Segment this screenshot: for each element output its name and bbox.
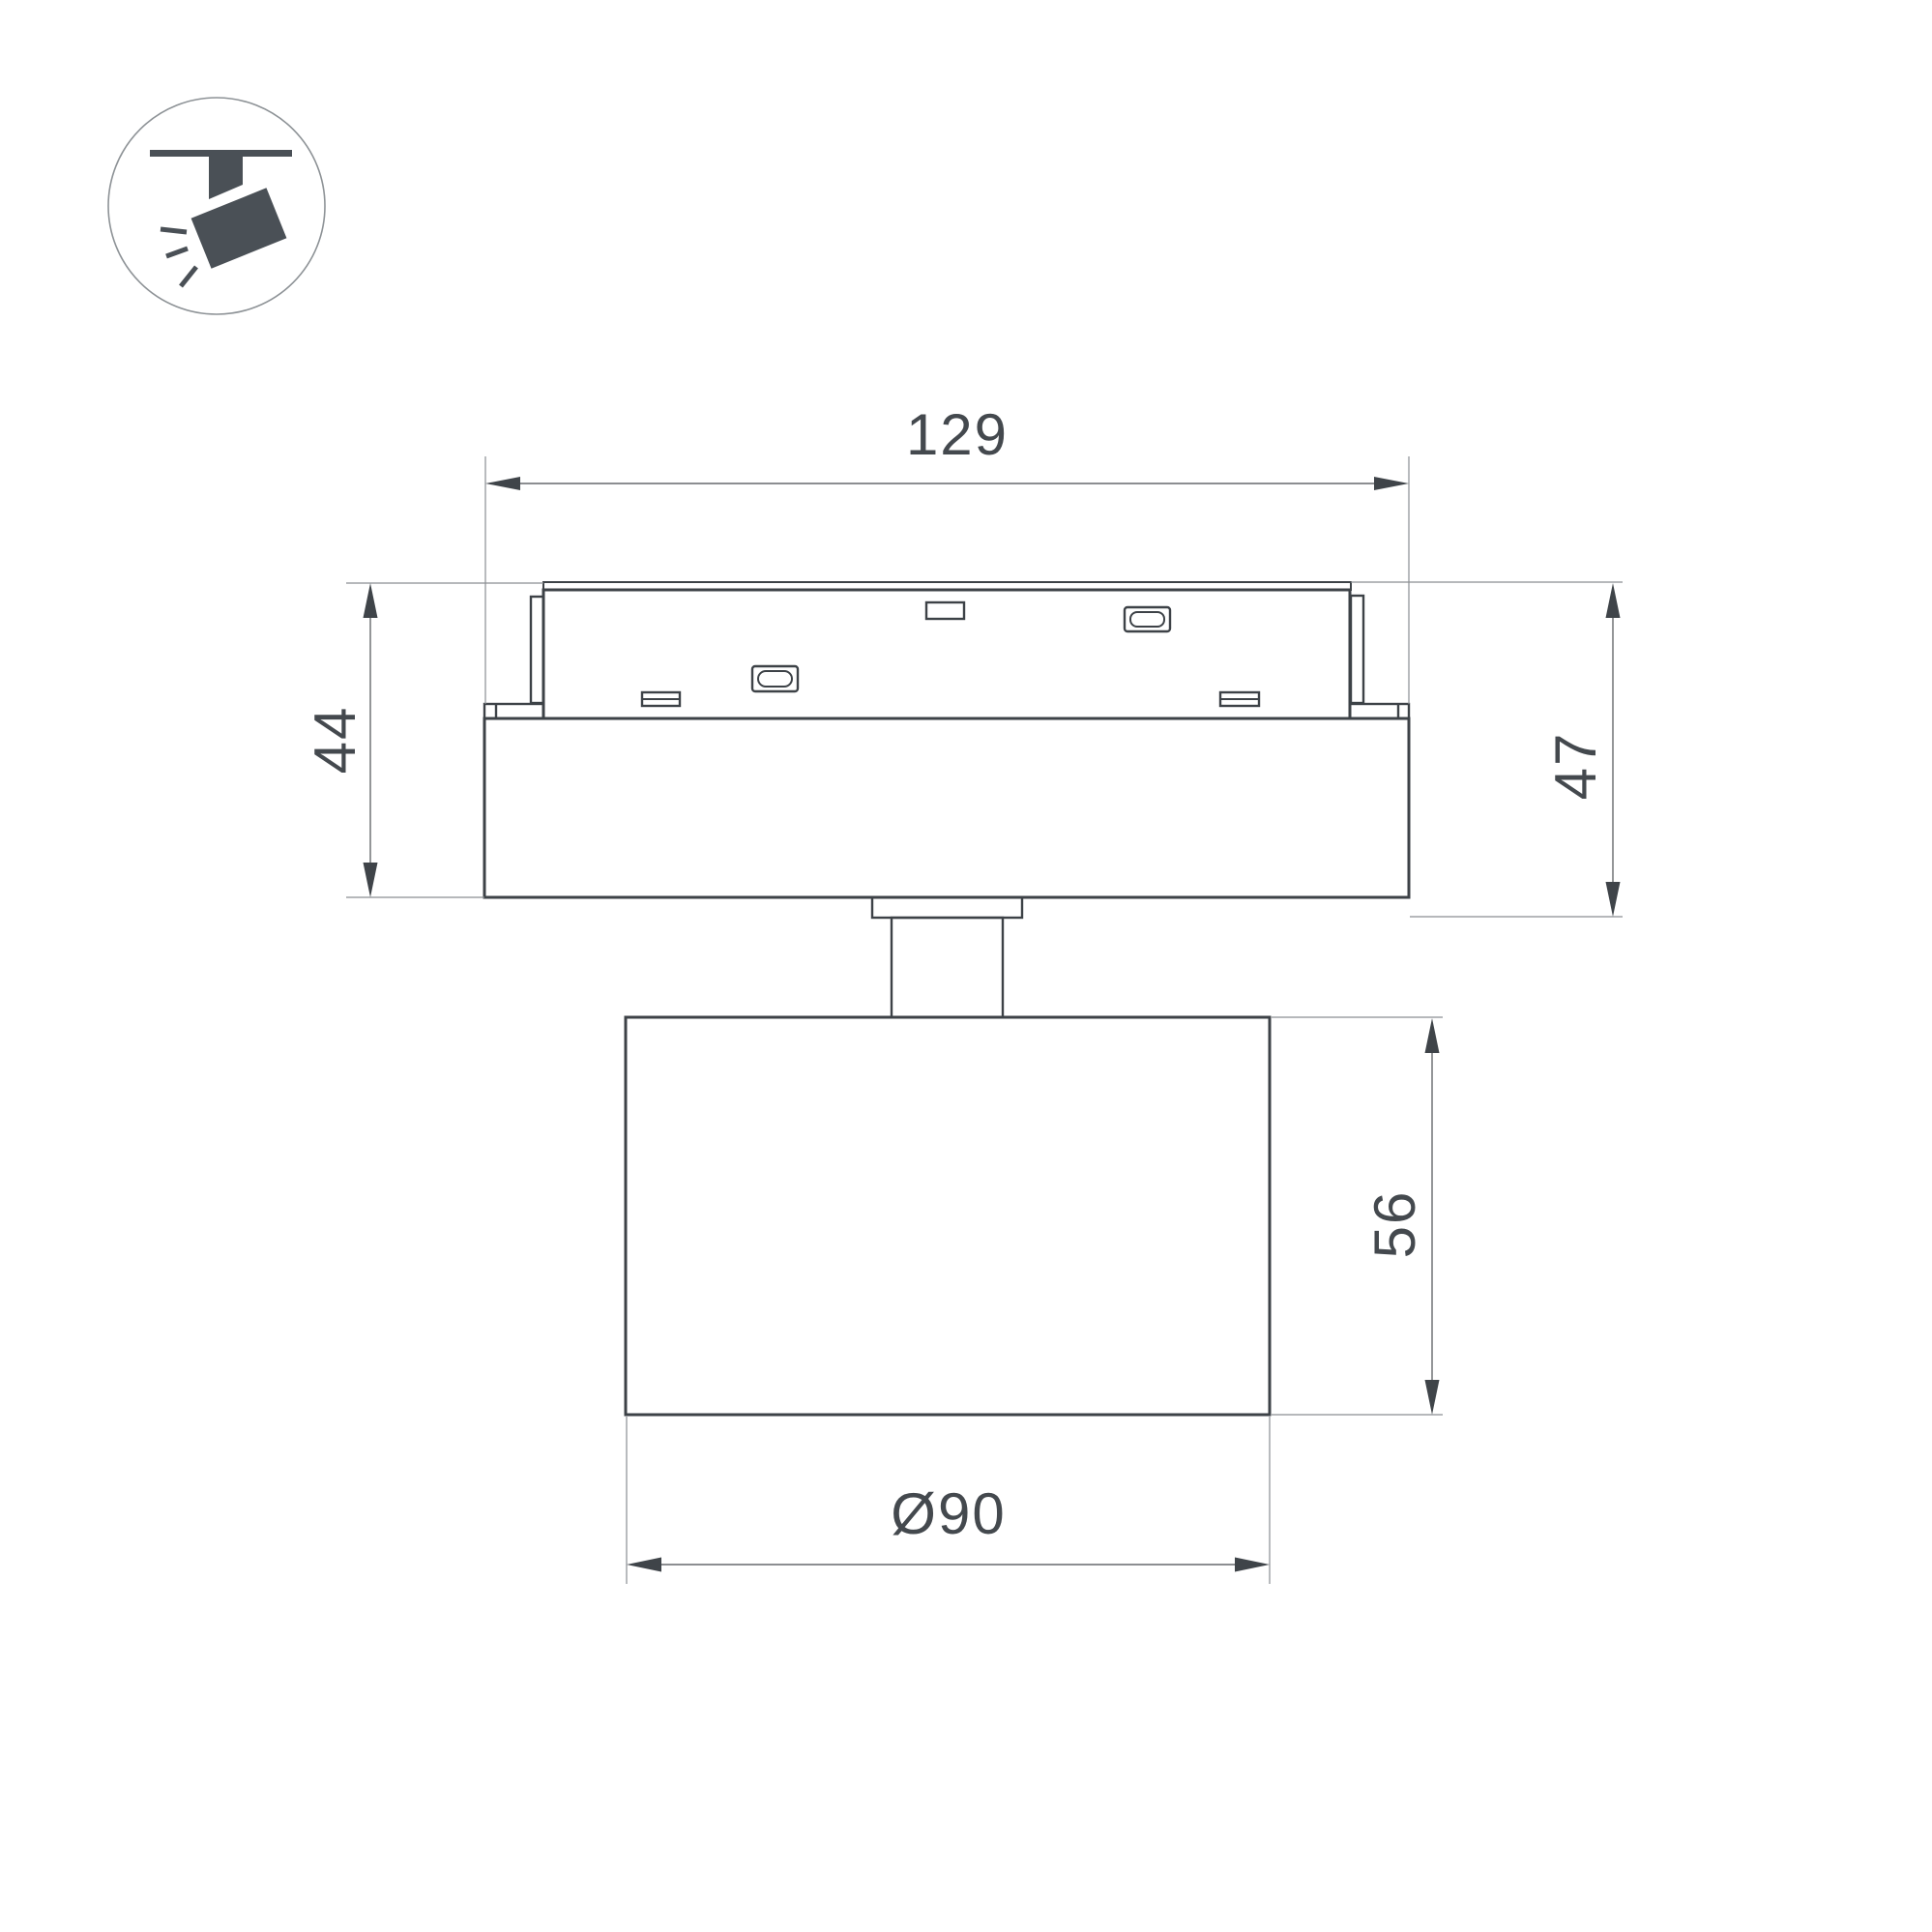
- housing-ledge-left: [484, 704, 543, 718]
- dim-label-right-height: 47: [1541, 659, 1611, 872]
- dim-label-head-diameter: Ø90: [842, 1479, 1055, 1549]
- adapter-slot-flat-right: [1220, 692, 1259, 706]
- dim-label-head-height: 56: [1361, 1118, 1430, 1331]
- adapter-slot-round-left: [752, 666, 798, 691]
- adapter-lower-housing: [484, 718, 1409, 897]
- icon-light-ray: [161, 229, 187, 232]
- lamp-head-cylinder: [626, 1017, 1270, 1415]
- icon-circle: [108, 98, 325, 314]
- adapter-slot-round-right: [1125, 607, 1170, 631]
- drawing-linework: [0, 0, 1932, 1932]
- adapter-slot-flat-left: [642, 692, 680, 706]
- housing-ledge-right: [1350, 704, 1409, 718]
- dimension-width-overall: [485, 477, 1409, 490]
- dim-label-adapter-height: 44: [301, 633, 370, 846]
- swivel-joint: [872, 897, 1022, 1017]
- pivot-stem: [892, 918, 1003, 1017]
- adapter-clip-right: [1351, 596, 1363, 703]
- dimension-diameter-head: [627, 1558, 1270, 1572]
- dim-label-overall-width: 129: [851, 400, 1064, 470]
- adapter-slot-plain: [926, 602, 964, 619]
- track-adapter: [484, 582, 1409, 897]
- track-spotlight-icon: [108, 98, 325, 314]
- pivot-collar: [872, 897, 1022, 918]
- drawing-canvas: 129 44 47 56 Ø90: [0, 0, 1932, 1932]
- adapter-clip-left: [531, 597, 543, 703]
